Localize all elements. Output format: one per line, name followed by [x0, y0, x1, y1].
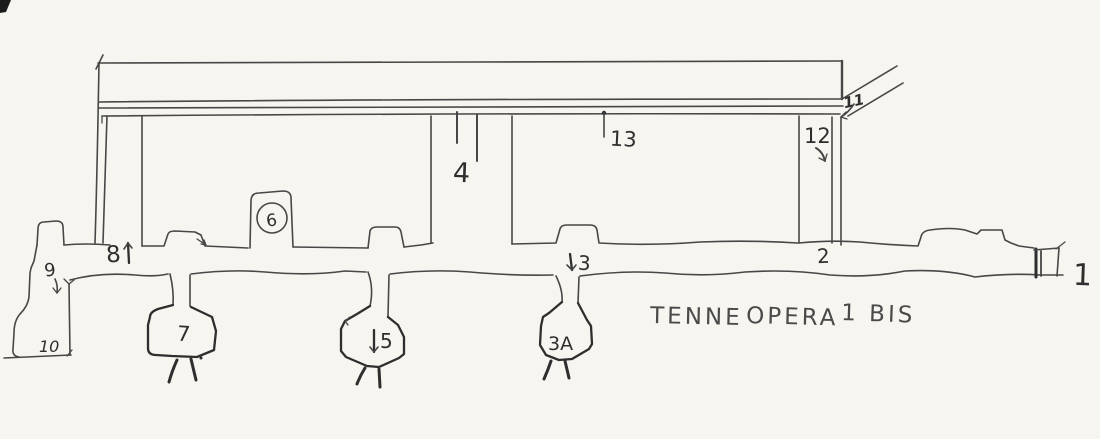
- label-5: 5: [380, 329, 393, 353]
- caption-word-2: OPERA: [746, 303, 839, 331]
- room-b: [512, 116, 799, 244]
- chamber-7-leg: [169, 360, 177, 382]
- label-9: 9: [43, 259, 57, 281]
- feature-13-marker: [602, 111, 606, 137]
- entrance-square-1: [1034, 242, 1065, 277]
- feature-4-lines: [457, 112, 477, 161]
- arrow-down-5: [370, 330, 378, 352]
- label-3a: 3A: [548, 333, 573, 355]
- scan-corner-mark: [0, 0, 11, 13]
- chamber-3a-leg: [565, 361, 569, 378]
- label-12: 12: [804, 124, 831, 148]
- chamber-5-leg: [379, 369, 380, 387]
- label-1: 1: [1072, 258, 1092, 294]
- dimension-line: [96, 55, 842, 99]
- label-10: 10: [39, 337, 59, 356]
- top-gallery-band: [99, 99, 843, 123]
- ink-dot: [200, 357, 203, 360]
- label-7: 7: [176, 322, 191, 347]
- label-8: 8: [105, 241, 121, 268]
- caption: TENNE OPERA 1 BIS: [649, 300, 916, 331]
- chamber-3a-leg: [544, 361, 551, 379]
- left-wall: [95, 63, 107, 243]
- arrow-down-12: [816, 148, 827, 161]
- chamber-5-leg: [357, 368, 365, 384]
- chamber-7-leg: [191, 359, 196, 380]
- scanned-sketch-page: 1 2 3 3A 4 5 6 7 8 9 10 11 12 13 TENNE O…: [0, 0, 1100, 439]
- label-3: 3: [577, 251, 591, 276]
- caption-word-1: TENNE: [649, 303, 743, 331]
- label-2: 2: [816, 244, 830, 269]
- sketch-canvas: 1 2 3 3A 4 5 6 7 8 9 10 11 12 13 TENNE O…: [0, 0, 1100, 439]
- arrow-down-9: [53, 279, 61, 293]
- arrow-down-3: [567, 254, 576, 270]
- label-6: 6: [265, 210, 279, 231]
- corridor: [70, 229, 1063, 281]
- caption-word-3: 1 BIS: [841, 300, 916, 329]
- label-13: 13: [609, 126, 637, 151]
- label-4: 4: [452, 158, 470, 190]
- room-a: [142, 116, 433, 248]
- chamber-5: [341, 272, 404, 387]
- label-11: 11: [842, 90, 866, 112]
- arrow-up-8: [124, 243, 132, 263]
